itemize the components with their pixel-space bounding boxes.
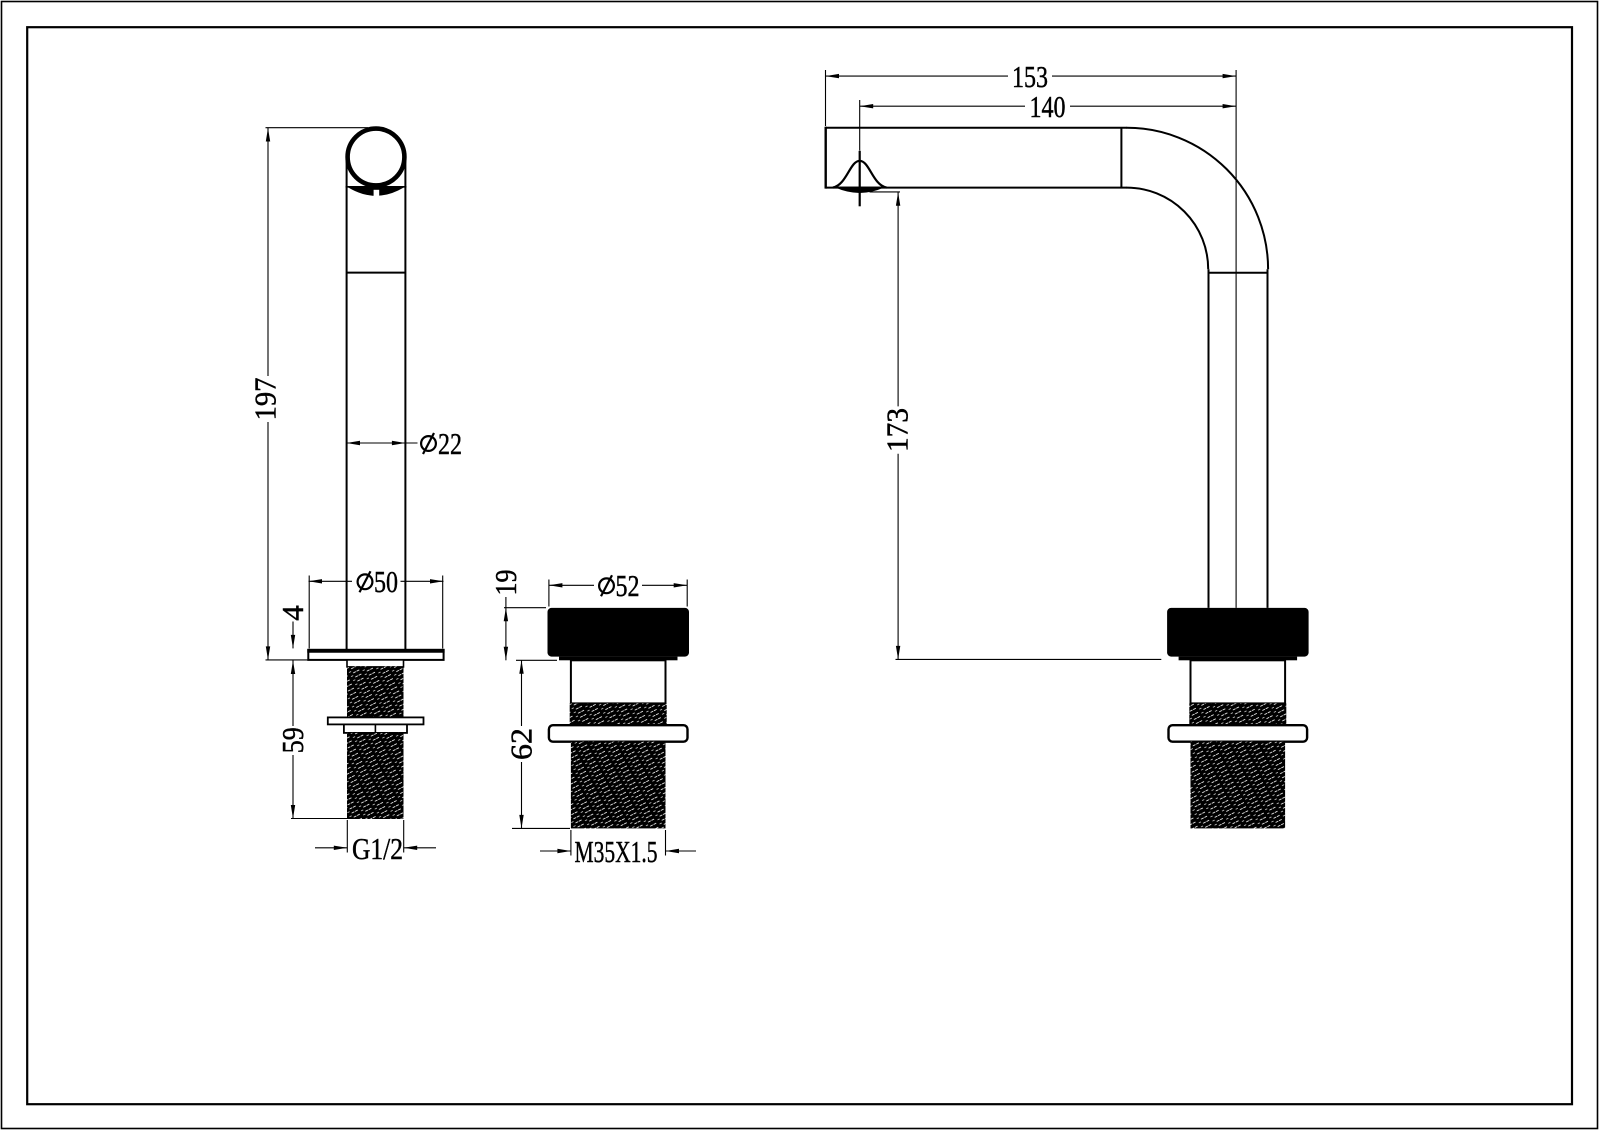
svg-text:197: 197 bbox=[248, 378, 283, 421]
svg-text:M35X1.5: M35X1.5 bbox=[575, 834, 658, 869]
svg-text:140: 140 bbox=[1030, 89, 1066, 124]
svg-text:52: 52 bbox=[616, 568, 640, 603]
svg-text:59: 59 bbox=[275, 727, 310, 753]
svg-text:19: 19 bbox=[488, 570, 523, 596]
svg-text:173: 173 bbox=[880, 408, 915, 452]
svg-text:50: 50 bbox=[374, 564, 398, 599]
svg-text:22: 22 bbox=[438, 426, 462, 461]
svg-text:G1/2: G1/2 bbox=[352, 831, 403, 866]
svg-text:62: 62 bbox=[504, 728, 539, 760]
svg-text:4: 4 bbox=[275, 605, 310, 621]
